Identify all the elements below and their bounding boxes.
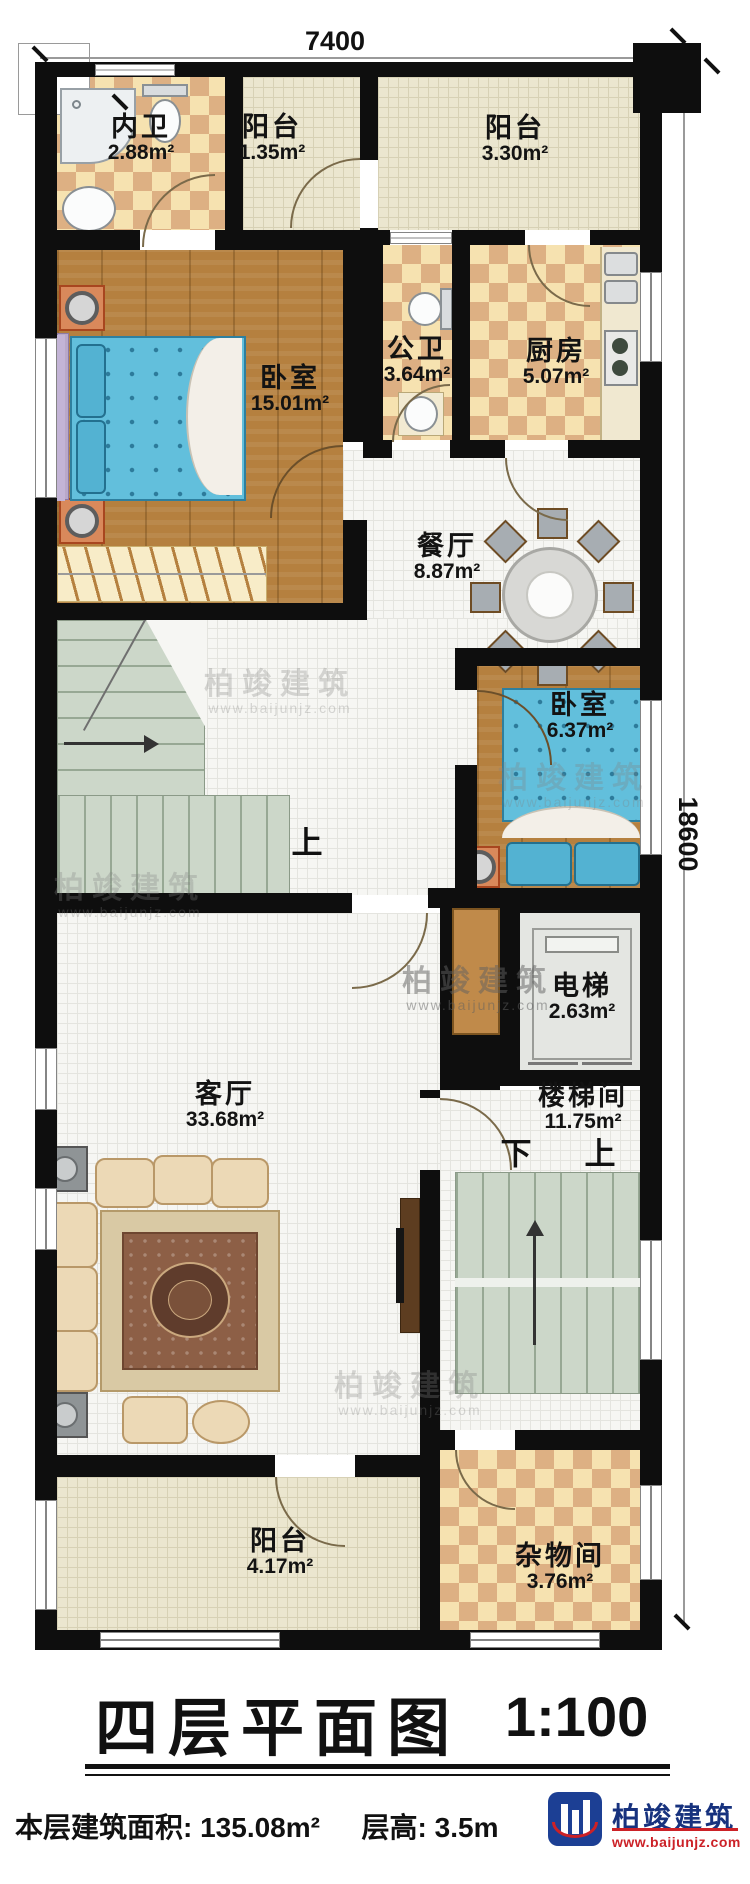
nightstand bbox=[59, 285, 105, 331]
room-name: 电梯 bbox=[549, 972, 616, 1001]
mid-staircase-lower bbox=[57, 795, 290, 898]
wall bbox=[455, 648, 477, 690]
curtain bbox=[57, 335, 65, 501]
window bbox=[95, 64, 175, 76]
room-name: 餐厅 bbox=[414, 532, 481, 561]
room-area: 8.87m² bbox=[414, 561, 481, 584]
window bbox=[35, 338, 57, 498]
room-name: 卧室 bbox=[251, 364, 329, 393]
dining-table-center bbox=[526, 571, 574, 619]
wall bbox=[590, 230, 645, 245]
room-name: 杂物间 bbox=[515, 1542, 605, 1571]
toilet-tank bbox=[142, 84, 188, 97]
wall bbox=[452, 230, 525, 245]
sofa-cushion bbox=[211, 1158, 269, 1208]
sofa-cushion bbox=[153, 1155, 213, 1205]
stair-direction-line bbox=[533, 1235, 536, 1345]
room-area: 3.64m² bbox=[384, 364, 451, 387]
floor-height-value: 3.5m bbox=[435, 1812, 499, 1843]
wall bbox=[363, 440, 392, 458]
floor-plan-page: 7400 18600 bbox=[0, 0, 750, 1884]
window bbox=[640, 1240, 662, 1360]
room-area: 3.30m² bbox=[482, 143, 549, 166]
stair-arrow-icon bbox=[144, 735, 159, 753]
plan-scale: 1:100 bbox=[505, 1684, 648, 1749]
room-name: 阳台 bbox=[482, 114, 549, 143]
wall bbox=[455, 765, 477, 908]
wall bbox=[420, 1090, 440, 1098]
room-label-kitchen: 厨房 5.07m² bbox=[523, 337, 590, 389]
burner-icon bbox=[612, 338, 628, 354]
room-label-balcony1: 阳台 1.35m² bbox=[239, 113, 306, 165]
stair-landing bbox=[455, 1278, 640, 1287]
room-label-elevator: 电梯 2.63m² bbox=[549, 972, 616, 1024]
title-underline-thick bbox=[85, 1764, 670, 1769]
toilet-bowl bbox=[408, 292, 442, 326]
wall bbox=[515, 1430, 640, 1450]
burner-icon bbox=[612, 360, 628, 376]
room-area: 33.68m² bbox=[186, 1109, 264, 1132]
floor-height-label: 层高: bbox=[362, 1812, 427, 1843]
wall bbox=[440, 895, 452, 1090]
floor-area-value: 135.08m² bbox=[200, 1812, 320, 1843]
room-label-balcony2: 阳台 3.30m² bbox=[482, 114, 549, 166]
room-name: 阳台 bbox=[239, 113, 306, 142]
wall bbox=[343, 230, 383, 442]
room-label-inner-bathroom: 内卫 2.88m² bbox=[108, 113, 175, 165]
kitchen-sink bbox=[604, 252, 638, 276]
room-name: 楼梯间 bbox=[538, 1082, 628, 1111]
room-name: 公卫 bbox=[384, 335, 451, 364]
wall bbox=[35, 230, 140, 250]
dining-chair bbox=[603, 582, 634, 613]
wall bbox=[215, 230, 363, 250]
wall bbox=[360, 62, 378, 160]
elevator-door-mark bbox=[528, 1062, 578, 1065]
dining-chair bbox=[470, 582, 501, 613]
room-area: 15.01m² bbox=[251, 393, 329, 416]
pillow bbox=[506, 842, 572, 886]
pillow bbox=[574, 842, 640, 886]
logo-swoosh bbox=[552, 1822, 598, 1838]
room-name: 客厅 bbox=[186, 1080, 264, 1109]
sofa-cushion bbox=[122, 1396, 188, 1444]
elevator-counterweight bbox=[545, 936, 619, 953]
window bbox=[35, 1048, 57, 1110]
room-area: 6.37m² bbox=[547, 720, 614, 743]
pillow bbox=[76, 420, 106, 494]
nightstand bbox=[59, 498, 105, 544]
kitchen-sink bbox=[604, 280, 638, 304]
wardrobe bbox=[57, 546, 267, 602]
room-name: 阳台 bbox=[247, 1527, 314, 1556]
dimension-top-value: 7400 bbox=[305, 26, 365, 57]
wall bbox=[420, 1450, 440, 1630]
wall bbox=[355, 1455, 420, 1477]
elevator-shaft-duct bbox=[452, 908, 500, 1035]
lamp-icon bbox=[65, 504, 99, 538]
room-label-balcony3: 阳台 4.17m² bbox=[247, 1527, 314, 1579]
window bbox=[35, 1500, 57, 1610]
stair-label-up-mid: 上 bbox=[292, 818, 323, 863]
brand-divider bbox=[612, 1828, 738, 1831]
room-area: 3.76m² bbox=[515, 1571, 605, 1594]
window bbox=[35, 1188, 57, 1250]
room-name: 厨房 bbox=[523, 337, 590, 366]
room-label-storage: 杂物间 3.76m² bbox=[515, 1542, 605, 1594]
pillow bbox=[76, 344, 106, 418]
wall bbox=[420, 1430, 455, 1450]
brand-logo-icon bbox=[548, 1792, 602, 1846]
wall bbox=[35, 1455, 275, 1477]
room-label-dining: 餐厅 8.87m² bbox=[414, 532, 481, 584]
window bbox=[640, 700, 662, 855]
wall bbox=[500, 905, 520, 1073]
wall bbox=[450, 440, 505, 458]
wall bbox=[57, 893, 352, 913]
room-name: 卧室 bbox=[547, 691, 614, 720]
sofa-cushion bbox=[95, 1158, 155, 1208]
wall bbox=[452, 245, 470, 440]
sink bbox=[62, 186, 116, 232]
stair-arrow-icon bbox=[526, 1220, 544, 1236]
window bbox=[470, 1632, 600, 1648]
floor-summary: 本层建筑面积: 135.08m² 层高: 3.5m bbox=[15, 1806, 498, 1846]
title-underline-thin bbox=[85, 1774, 670, 1776]
stair-label-up-lower: 上 bbox=[585, 1129, 616, 1174]
window bbox=[100, 1632, 280, 1648]
room-label-stairwell: 楼梯间 11.75m² bbox=[538, 1082, 628, 1134]
wall bbox=[35, 62, 57, 1650]
room-area: 4.17m² bbox=[247, 1556, 314, 1579]
room-area: 2.88m² bbox=[108, 142, 175, 165]
wall bbox=[440, 1080, 500, 1090]
stair-label-down: 下 bbox=[501, 1129, 532, 1174]
tv-icon bbox=[396, 1228, 404, 1303]
room-name: 内卫 bbox=[108, 113, 175, 142]
wall bbox=[500, 900, 640, 913]
window bbox=[640, 272, 662, 362]
wall bbox=[455, 648, 640, 666]
room-balcony3-floor bbox=[57, 1477, 420, 1630]
coffee-table-inner bbox=[168, 1280, 212, 1320]
room-label-public-bathroom: 公卫 3.64m² bbox=[384, 335, 451, 387]
wall bbox=[420, 1170, 440, 1435]
room-area: 2.63m² bbox=[549, 1001, 616, 1024]
window bbox=[640, 1485, 662, 1580]
wall bbox=[35, 603, 367, 620]
plan-title: 四层平面图 bbox=[95, 1678, 460, 1769]
brand-website: www.baijunjz.com bbox=[612, 1834, 741, 1850]
room-label-living: 客厅 33.68m² bbox=[186, 1080, 264, 1132]
ottoman bbox=[192, 1400, 250, 1444]
room-area: 5.07m² bbox=[523, 366, 590, 389]
window bbox=[390, 232, 452, 244]
dimension-right-value: 18600 bbox=[672, 778, 703, 890]
elevator-door-mark bbox=[582, 1062, 632, 1065]
room-label-bedroom2: 卧室 6.37m² bbox=[547, 691, 614, 743]
dimension-tick bbox=[674, 1614, 691, 1631]
dimension-tick bbox=[670, 28, 687, 45]
dimension-tick bbox=[704, 58, 721, 75]
room-area: 1.35m² bbox=[239, 142, 306, 165]
lamp-icon bbox=[65, 291, 99, 325]
stair-direction-line bbox=[64, 742, 144, 745]
floor-area-label: 本层建筑面积: bbox=[15, 1812, 192, 1843]
dimension-line-top bbox=[40, 57, 648, 59]
shower-drain bbox=[72, 100, 81, 109]
wall bbox=[568, 440, 645, 458]
room-label-bedroom1: 卧室 15.01m² bbox=[251, 364, 329, 416]
